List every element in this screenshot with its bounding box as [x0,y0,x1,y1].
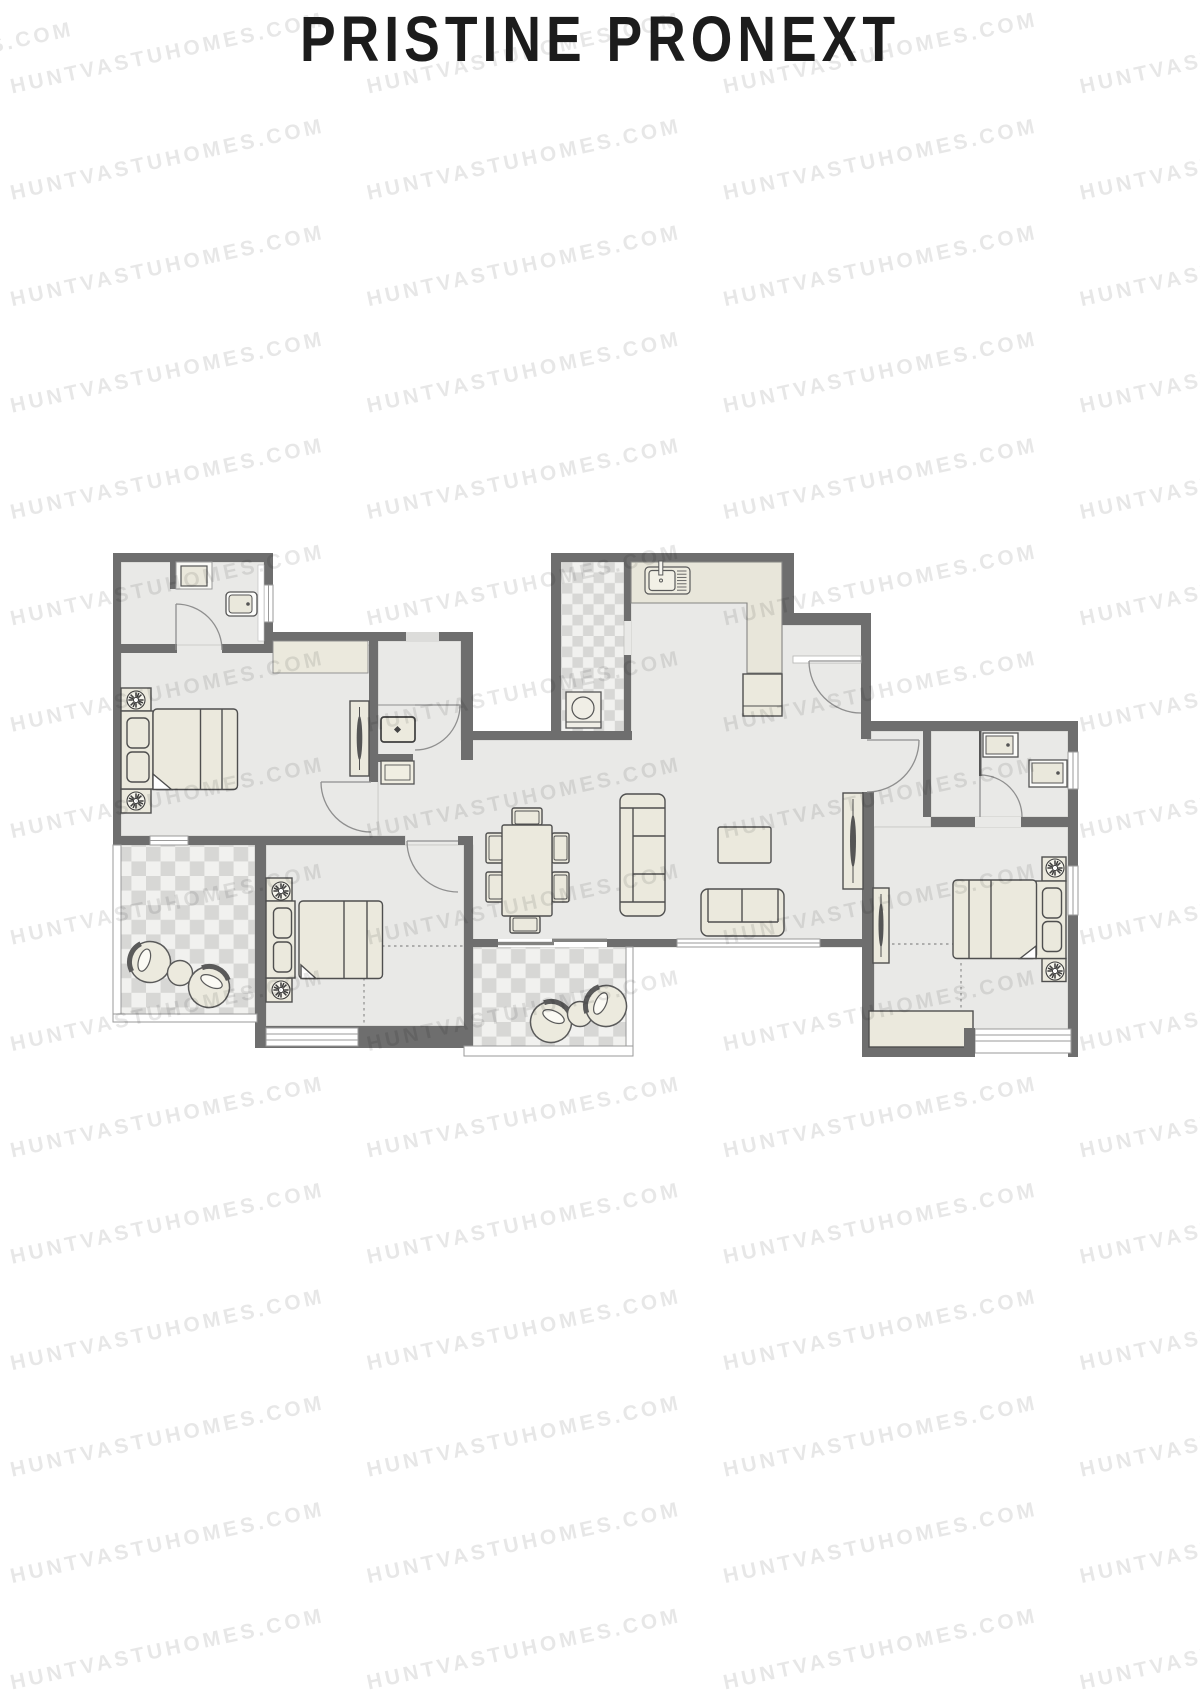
svg-text:PRISTINE PRONEXT: PRISTINE PRONEXT [300,3,900,75]
